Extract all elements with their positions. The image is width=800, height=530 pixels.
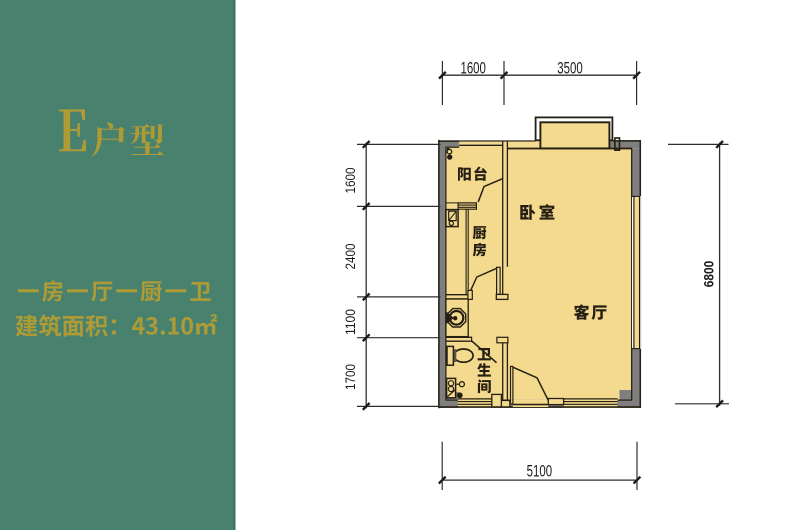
svg-text:3500: 3500	[557, 59, 583, 77]
svg-text:1600: 1600	[460, 59, 486, 77]
svg-text:1700: 1700	[343, 364, 359, 390]
svg-text:5100: 5100	[527, 463, 553, 481]
svg-text:1100: 1100	[343, 309, 359, 335]
svg-text:1600: 1600	[343, 167, 359, 193]
svg-text:6800: 6800	[702, 261, 717, 288]
svg-text:2400: 2400	[343, 243, 359, 269]
